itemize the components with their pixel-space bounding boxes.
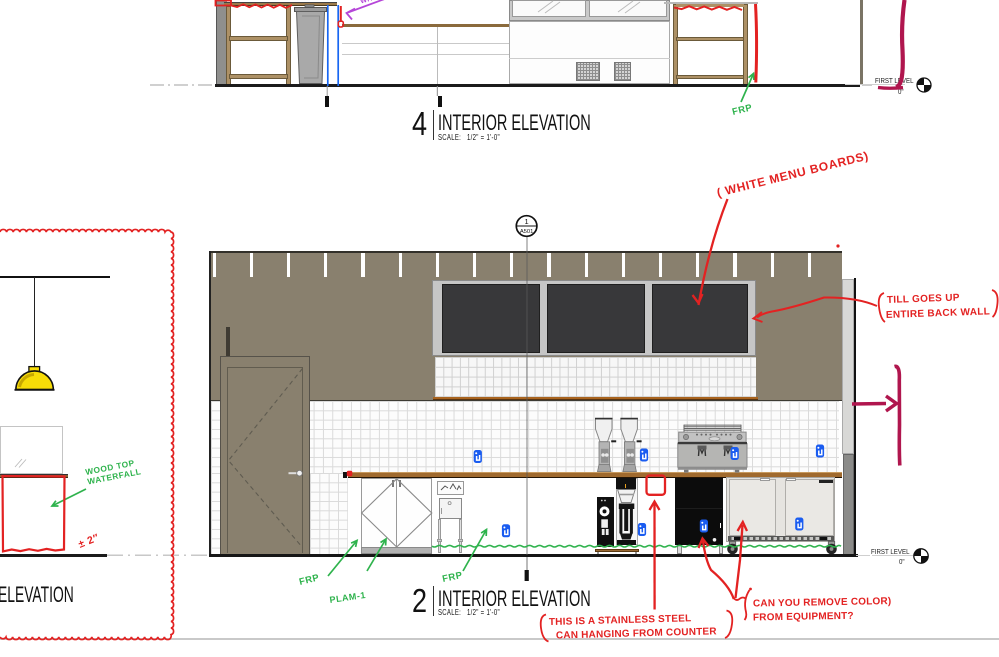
svg-text:ENTIRE BACK WALL: ENTIRE BACK WALL [886,306,991,321]
svg-text:THIS IS A STAINLESS STEEL: THIS IS A STAINLESS STEEL [549,613,692,628]
svg-text:CAN HANGING FROM COUNTER: CAN HANGING FROM COUNTER [556,626,718,641]
svg-text:( WHITE MENU BOARDS): ( WHITE MENU BOARDS) [715,149,870,200]
svg-text:± 2″: ± 2″ [77,532,101,551]
svg-text:FRP: FRP [731,102,754,118]
svg-text:FRP: FRP [441,570,463,585]
svg-text:TILL GOES UP: TILL GOES UP [887,292,960,306]
svg-text:FROM EQUIPMENT?: FROM EQUIPMENT? [753,611,854,624]
svg-text:CAN YOU REMOVE COLOR): CAN YOU REMOVE COLOR) [753,596,892,609]
svg-text:A501: A501 [520,229,534,235]
svg-text:PLAM-1: PLAM-1 [329,590,367,605]
svg-text:FRP: FRP [298,572,321,588]
svg-text:1: 1 [525,217,529,226]
